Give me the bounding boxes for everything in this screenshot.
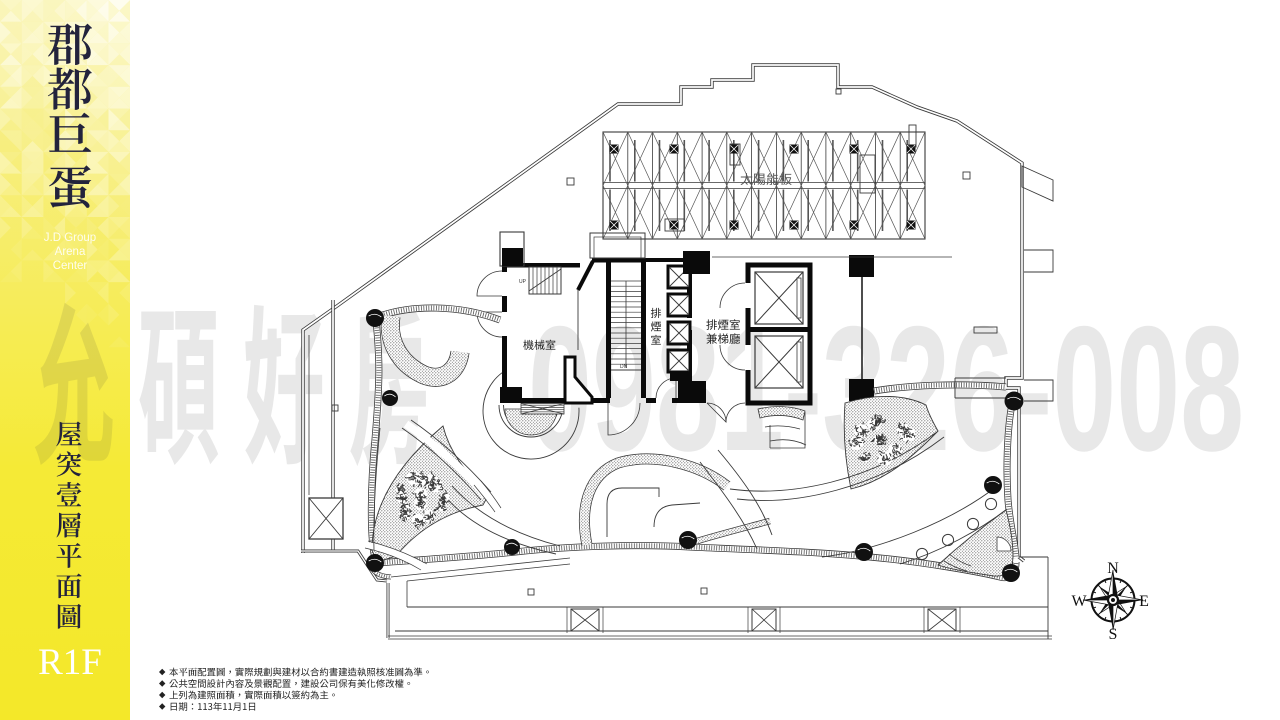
svg-text:R1F: R1F: [38, 642, 102, 683]
svg-text:W: W: [1071, 593, 1087, 610]
svg-text:DN: DN: [620, 364, 628, 370]
svg-text:J.D Group: J.D Group: [44, 232, 96, 244]
svg-text:E: E: [1139, 593, 1149, 610]
svg-text:S: S: [1109, 626, 1118, 643]
svg-text:Arena: Arena: [55, 246, 86, 258]
svg-text:UP: UP: [519, 279, 527, 285]
svg-text:Center: Center: [53, 260, 88, 272]
svg-text:N: N: [1107, 560, 1119, 577]
